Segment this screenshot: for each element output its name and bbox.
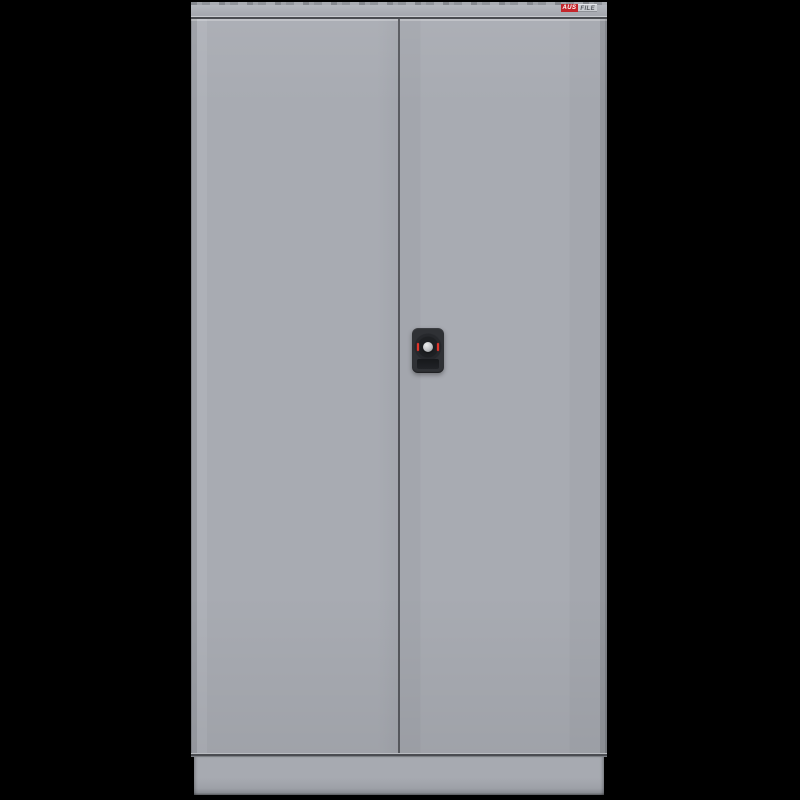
- cabinet-top-rail: AUS FILE: [191, 2, 607, 16]
- door-panels: [191, 19, 607, 753]
- top-edge-highlight: [191, 2, 607, 5]
- left-door: [191, 19, 398, 753]
- cam-lock: [412, 328, 444, 373]
- brand-logo-prefix: AUS: [561, 4, 579, 12]
- lock-handle-recess: [417, 359, 439, 369]
- stationery-cabinet: AUS FILE: [191, 2, 607, 795]
- photo-background: AUS FILE: [0, 0, 800, 800]
- brand-logo-suffix: FILE: [578, 4, 597, 12]
- lock-red-indicator-right: [437, 343, 439, 351]
- brand-logo: AUS FILE: [561, 4, 597, 12]
- lock-keyhole-button: [423, 342, 433, 352]
- cabinet-plinth: [194, 757, 604, 795]
- right-door: [400, 19, 607, 753]
- lock-red-indicator-left: [417, 343, 419, 351]
